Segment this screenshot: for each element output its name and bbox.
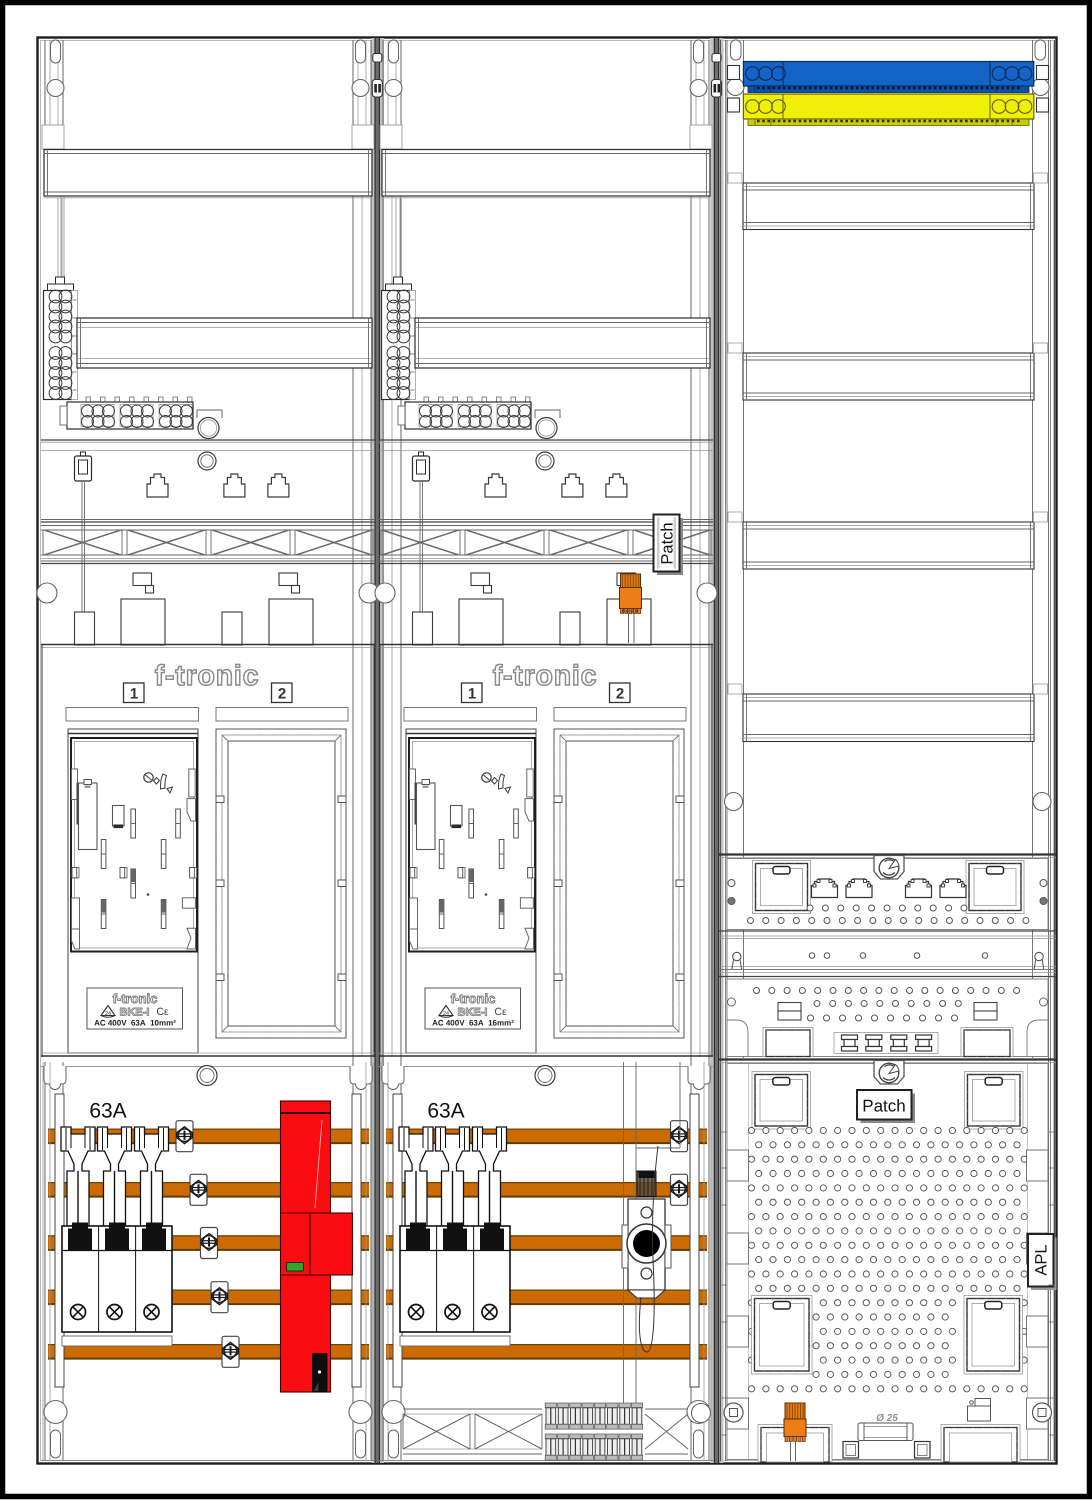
- svg-text:Cε: Cε: [494, 1006, 507, 1018]
- svg-text:Patch: Patch: [658, 522, 676, 564]
- svg-text:24: 24: [105, 1011, 111, 1017]
- svg-text:Cε: Cε: [156, 1006, 169, 1018]
- svg-text:2: 2: [616, 686, 624, 703]
- svg-text:1: 1: [468, 686, 476, 703]
- svg-text:f-tronic: f-tronic: [155, 660, 260, 692]
- svg-text:BKE-I: BKE-I: [458, 1007, 488, 1019]
- svg-text:f-tronic: f-tronic: [493, 660, 598, 692]
- svg-text:1: 1: [130, 686, 138, 703]
- svg-text:2: 2: [278, 686, 286, 703]
- svg-text:24: 24: [443, 1011, 449, 1017]
- svg-text:APL: APL: [1032, 1244, 1050, 1275]
- svg-text:Patch: Patch: [862, 1097, 905, 1116]
- svg-text:Ø 25: Ø 25: [876, 1413, 898, 1424]
- svg-text:63A: 63A: [427, 1100, 464, 1123]
- svg-text:AC 400V 63A 10mm²: AC 400V 63A 10mm²: [94, 1019, 176, 1028]
- svg-text:BKE-I: BKE-I: [120, 1007, 150, 1019]
- svg-text:AC 400V 63A 16mm²: AC 400V 63A 16mm²: [432, 1019, 514, 1028]
- svg-text:f-tronic: f-tronic: [451, 991, 496, 1006]
- svg-text:f-tronic: f-tronic: [113, 991, 158, 1006]
- svg-text:63A: 63A: [89, 1100, 126, 1123]
